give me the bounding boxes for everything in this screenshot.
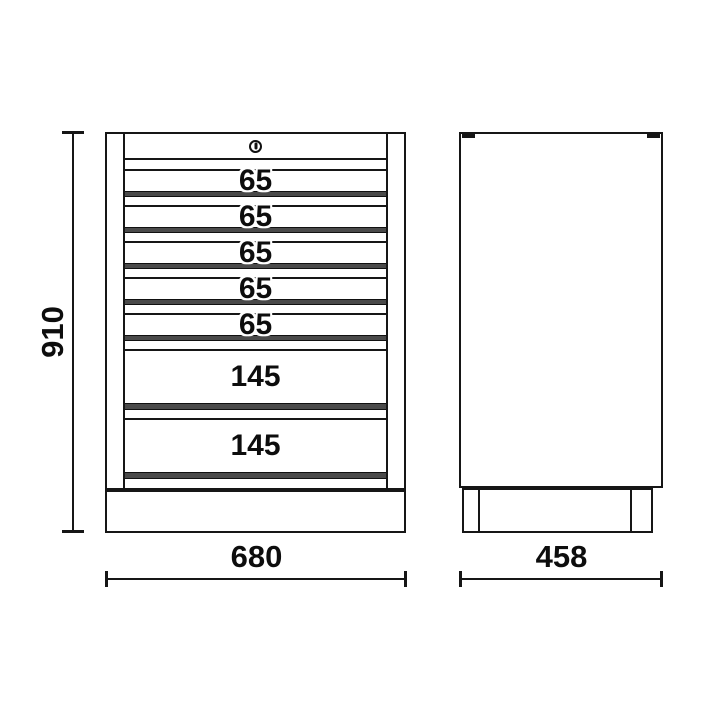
width-dimension-label: 680 [106,541,407,572]
drawer-face: 145 [125,420,386,472]
drawer-face: 65 [125,243,386,263]
top-rail [125,134,386,160]
drawer-face: 145 [125,351,386,403]
drawer-row-7: 145 [125,418,386,488]
height-dimension-tick-top [62,131,84,134]
drawer-face: 65 [125,315,386,335]
drawer-face: 65 [125,279,386,299]
cabinet-dimension-drawing: 910 65 65 [0,0,720,720]
height-dimension-label: 910 [22,302,82,362]
drawer-row-5: 65 [125,313,386,349]
width-dimension-tick-left [105,571,108,587]
front-right-side-panel [386,134,404,488]
drawer-height-label: 65 [239,310,272,340]
drawer-height-label: 145 [230,362,280,392]
drawer-height-label: 145 [230,431,280,461]
height-dimension-tick-bottom [62,530,84,533]
drawer-gap [125,341,386,349]
drawer-face: 65 [125,171,386,191]
drawer-height-label: 65 [239,274,272,304]
cabinet-front-view: 65 65 65 65 [105,132,406,490]
drawer-handle-strip [125,403,386,410]
side-top-left-trim [462,133,475,138]
front-base-plinth [105,490,406,533]
drawer-face: 65 [125,207,386,227]
side-base-plinth [462,488,653,533]
depth-dimension-line [460,578,663,580]
width-dimension-tick-right [404,571,407,587]
drawer-height-label: 65 [239,166,272,196]
depth-dimension-tick-right [660,571,663,587]
side-top-right-trim [647,133,660,138]
depth-dimension-tick-left [459,571,462,587]
front-left-side-panel [107,134,125,488]
front-drawer-column: 65 65 65 65 [125,134,386,488]
side-base-rear-leg-line [630,490,632,531]
drawer-gap [125,479,386,488]
lock-icon [249,140,262,153]
side-base-front-leg-line [478,490,480,531]
drawer-gap [125,410,386,418]
drawer-row-6: 145 [125,349,386,418]
depth-dimension-label: 458 [460,541,663,572]
drawer-height-label: 65 [239,238,272,268]
drawer-handle-strip [125,472,386,479]
width-dimension-line [106,578,407,580]
cabinet-side-view [459,132,663,488]
drawer-height-label: 65 [239,202,272,232]
